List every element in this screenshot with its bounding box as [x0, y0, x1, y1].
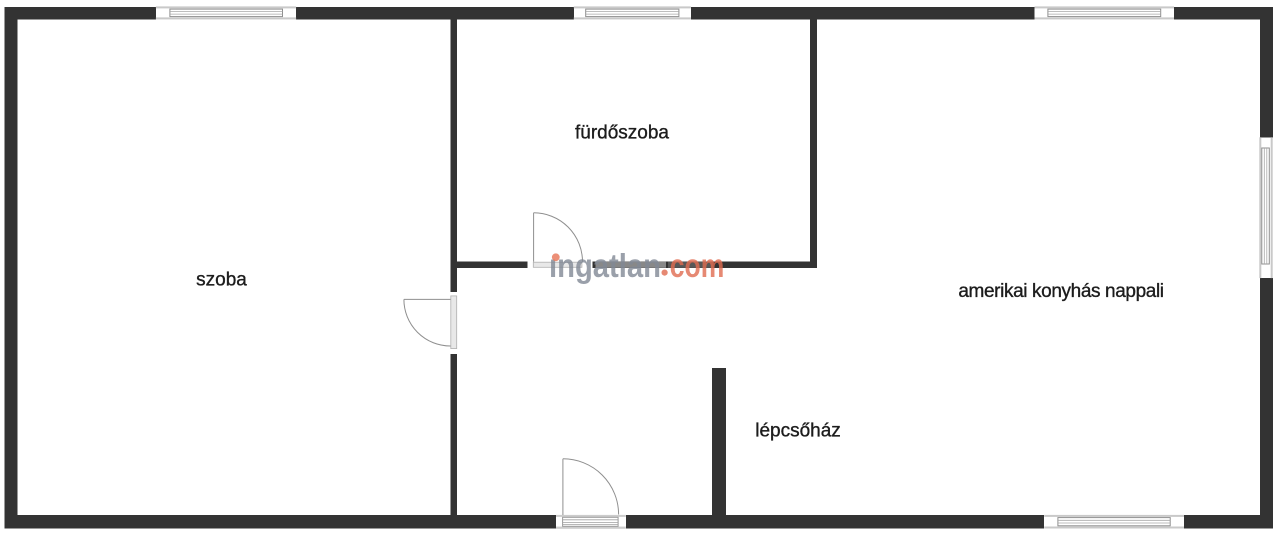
- svg-text:com: com: [670, 247, 725, 284]
- svg-text:szoba: szoba: [196, 270, 247, 291]
- svg-text:ıngatlan: ıngatlan: [549, 247, 661, 284]
- svg-text:amerikai konyhás nappali: amerikai konyhás nappali: [958, 281, 1163, 302]
- svg-text:lépcsőház: lépcsőház: [755, 421, 841, 442]
- svg-text:fürdőszoba: fürdőszoba: [575, 123, 669, 144]
